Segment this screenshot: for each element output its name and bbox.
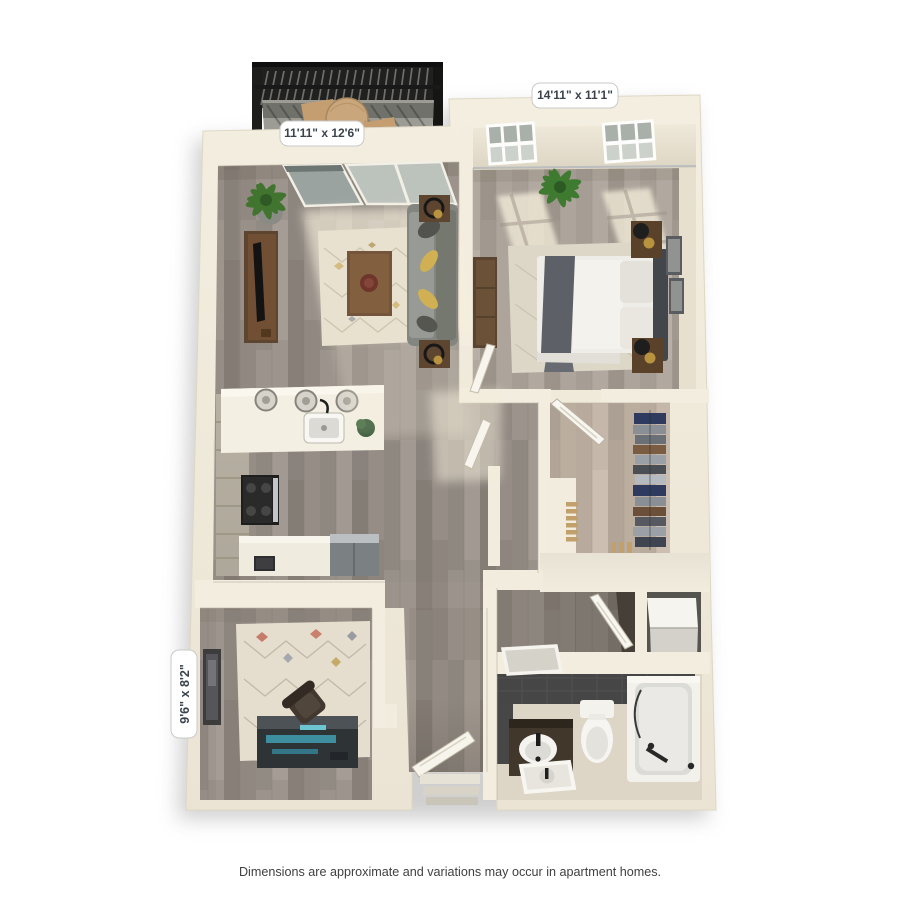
- svg-text:11'11" x 12'6": 11'11" x 12'6": [284, 126, 360, 140]
- svg-text:9'6" x 8'2": 9'6" x 8'2": [178, 664, 192, 724]
- svg-text:Dimensions are approximate and: Dimensions are approximate and variation…: [239, 865, 661, 879]
- svg-text:14'11" x 11'1": 14'11" x 11'1": [537, 88, 613, 102]
